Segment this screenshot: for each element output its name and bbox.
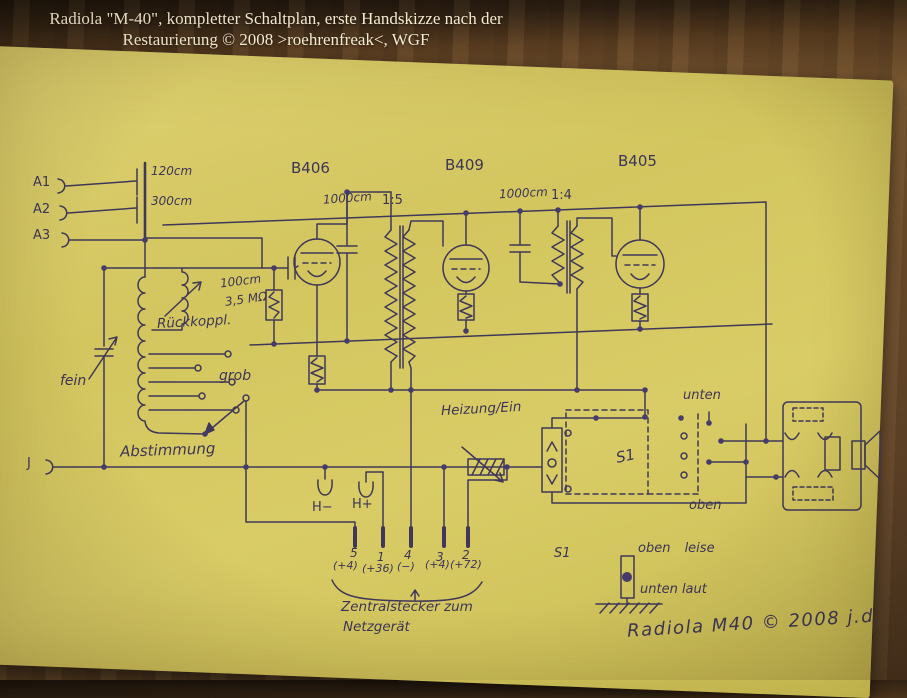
contact-down-icon bbox=[547, 475, 557, 484]
label-s1-legend: S1 bbox=[554, 547, 571, 561]
speaker-cone-icon bbox=[865, 431, 880, 479]
label-volt-pin2: (+72) bbox=[450, 559, 482, 571]
label-cap-300cm: 300cm bbox=[151, 195, 192, 208]
label-antenna-a1: A1 bbox=[33, 176, 50, 190]
output-contact-group bbox=[681, 412, 783, 478]
label-grob: grob bbox=[219, 369, 251, 384]
transformer-1to4 bbox=[552, 210, 616, 390]
contact-mid-icon bbox=[548, 459, 556, 467]
junction-dots bbox=[101, 189, 779, 480]
middle-bus bbox=[250, 324, 772, 345]
label-oben: oben bbox=[689, 499, 721, 513]
photo-caption: Radiola "M-40", kompletter Schaltplan, e… bbox=[0, 8, 552, 50]
label-h-plus: H+ bbox=[352, 498, 373, 512]
fine-variable-capacitor bbox=[95, 268, 113, 467]
label-tube-b405: B405 bbox=[618, 153, 657, 170]
label-cap-120cm: 120cm bbox=[151, 165, 192, 178]
caption-line1: Radiola "M-40", kompletter Schaltplan, e… bbox=[0, 8, 552, 29]
plug-pins bbox=[355, 528, 468, 546]
socket-h-plus-icon bbox=[359, 482, 373, 497]
speaker-icon bbox=[852, 441, 865, 469]
transformer-1to5 bbox=[385, 192, 443, 390]
output-sockets-bottom bbox=[785, 471, 832, 478]
label-cap-1000cm-2: 1000cm bbox=[499, 186, 548, 202]
tube-b405 bbox=[616, 240, 664, 288]
antenna-section bbox=[58, 163, 145, 277]
tube-b406 bbox=[294, 239, 340, 285]
stage-b405 bbox=[616, 207, 664, 329]
s1-dashed-boundary bbox=[566, 410, 648, 494]
jack-a2-icon bbox=[60, 206, 67, 220]
output-box bbox=[783, 402, 861, 510]
label-jack-j: J bbox=[27, 457, 31, 471]
label-fein: fein bbox=[60, 374, 86, 389]
label-ratio-1to4: 1:4 bbox=[551, 189, 572, 203]
contact-up-icon bbox=[547, 442, 557, 451]
stage-b409 bbox=[443, 211, 560, 331]
hand-drawn-circuit bbox=[0, 0, 907, 680]
label-volt-pin5: (+4) bbox=[333, 560, 358, 572]
label-unten: unten bbox=[683, 389, 721, 403]
label-antenna-a3: A3 bbox=[33, 229, 50, 243]
jack-a3-icon bbox=[62, 233, 69, 247]
tube-b409 bbox=[443, 245, 489, 291]
label-s1-switch: S1 bbox=[614, 446, 636, 466]
label-oben-leise: oben leise bbox=[638, 542, 715, 556]
label-h-minus: H− bbox=[312, 501, 333, 515]
caption-line2: Restaurierung © 2008 >roehrenfreak<, WGF bbox=[0, 29, 552, 50]
label-tube-b406: B406 bbox=[291, 160, 330, 177]
label-tube-b409: B409 bbox=[445, 157, 484, 174]
speaker-assembly bbox=[783, 402, 880, 510]
jack-j-icon bbox=[46, 460, 53, 474]
photo-of-schematic: { "caption": { "line1": "Radiola \"M-40\… bbox=[0, 0, 907, 680]
label-abstimmung: Abstimmung bbox=[120, 440, 216, 460]
label-zentralstecker-line1: Zentralstecker zum bbox=[341, 600, 473, 615]
label-zentralstecker-line2: Netzgerät bbox=[343, 620, 410, 635]
label-volt-pin1: (+36) bbox=[362, 563, 394, 575]
label-unten-laut: unten laut bbox=[640, 583, 707, 597]
jack-a1-icon bbox=[58, 179, 65, 193]
label-antenna-a2: A2 bbox=[33, 203, 50, 217]
label-volt-pin4: (−) bbox=[397, 561, 415, 573]
label-ratio-1to5: 1:5 bbox=[382, 194, 403, 208]
socket-h-minus-icon bbox=[318, 480, 332, 495]
switch-s1-block bbox=[542, 410, 746, 503]
pin-brace bbox=[332, 580, 482, 601]
label-volt-pin3: (+4) bbox=[425, 559, 450, 571]
stage-b406 bbox=[294, 192, 391, 390]
